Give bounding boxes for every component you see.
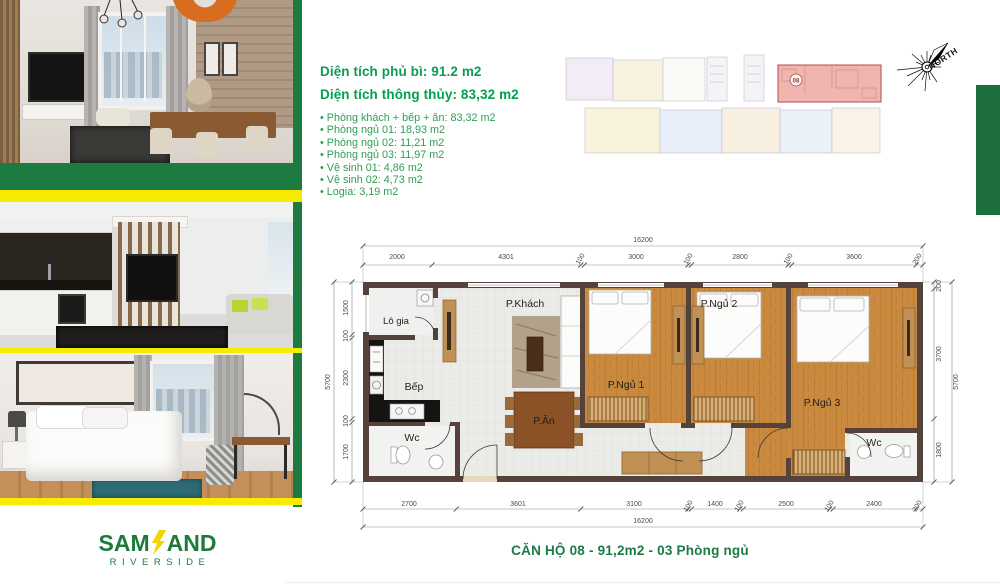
picture-frame xyxy=(16,361,138,405)
spec-item: Vệ sinh 02: 4,73 m2 xyxy=(320,174,570,186)
green-pillow xyxy=(232,300,248,312)
dim-bottom: 100 xyxy=(824,499,836,513)
wall-art xyxy=(204,42,220,76)
pouf xyxy=(96,108,130,126)
room-label-bed2: P.Ngủ 2 xyxy=(701,298,738,310)
dim-top: 3000 xyxy=(628,254,644,261)
window xyxy=(268,222,293,304)
dim-bottom: 3100 xyxy=(626,501,642,508)
chair xyxy=(150,128,172,154)
dark-rug xyxy=(56,326,228,348)
wall-art xyxy=(222,42,238,76)
room-label-wc2: Wc xyxy=(866,437,881,449)
dim-bottom: 3601 xyxy=(510,501,526,508)
photo-living-room xyxy=(0,0,293,163)
dim-bottom: 2700 xyxy=(401,501,417,508)
dim-left: 2300 xyxy=(343,370,350,386)
green-accent-block xyxy=(976,85,1000,215)
divider-band-green xyxy=(0,163,302,190)
compass-rose: NORTH xyxy=(890,30,975,110)
chair xyxy=(246,126,268,152)
floorplate-locator: 08 xyxy=(560,48,890,160)
unit-number-badge: 08 xyxy=(793,79,800,85)
logo-wordmark: SAMAND xyxy=(75,530,240,555)
divider-band-yellow xyxy=(0,498,302,505)
spec-item: Vệ sinh 01: 4,86 m2 xyxy=(320,162,570,174)
dim-top: 2800 xyxy=(732,254,748,261)
desk xyxy=(232,437,290,445)
dim-left: 100 xyxy=(343,415,350,427)
lamp-base xyxy=(15,427,18,441)
highlighted-unit-08: 08 xyxy=(778,65,881,102)
room-label-living: P.Khách xyxy=(506,298,544,310)
dim-right: 3700 xyxy=(936,346,943,362)
brand-logo: SAMAND RIVERSIDE xyxy=(75,530,240,568)
photo-bedroom xyxy=(0,353,293,498)
divider-band-yellow xyxy=(0,190,302,202)
spec-item: Phòng ngủ 01: 18,93 m2 xyxy=(320,124,570,136)
tv xyxy=(126,254,178,302)
oven xyxy=(58,294,86,324)
arc-lamp xyxy=(244,393,280,435)
chair xyxy=(196,132,218,158)
green-pillow xyxy=(252,298,268,310)
dim-bottom: 1400 xyxy=(707,501,723,508)
dim-top-total: 16200 xyxy=(633,237,653,244)
dim-bottom: 200 xyxy=(912,499,924,513)
countertop xyxy=(0,280,112,290)
dim-right: 1800 xyxy=(936,442,943,458)
floor-plan: P.Khách Lô gia Bếp Wc P.Ăn P.Ngủ 1 P.Ngủ… xyxy=(300,228,980,540)
dim-left: 100 xyxy=(343,330,350,342)
dim-bottom: 2500 xyxy=(778,501,794,508)
table-lamp xyxy=(8,411,26,427)
faucet xyxy=(48,264,51,280)
room-label-wc1: Wc xyxy=(404,432,419,444)
wood-slat-wall xyxy=(0,0,20,163)
brochure-page: Diện tích phủ bì: 91.2 m2 Diện tích thôn… xyxy=(0,0,1000,587)
upper-cabinets xyxy=(0,218,112,233)
dim-right-total: 5700 xyxy=(953,374,960,390)
room-label-bed1: P.Ngủ 1 xyxy=(608,379,645,391)
spec-item: Phòng khách + bếp + ăn: 83,32 m2 xyxy=(320,112,570,124)
dim-left: 1700 xyxy=(343,444,350,460)
dim-bottom: 100 xyxy=(683,499,695,513)
room-label-bed3: P.Ngủ 3 xyxy=(804,397,841,409)
desk-chair xyxy=(206,445,234,485)
dim-bottom: 100 xyxy=(734,499,746,513)
dim-top: 4301 xyxy=(498,254,514,261)
spec-item: Phòng ngủ 03: 11,97 m2 xyxy=(320,149,570,161)
apartment-caption: CĂN HỘ 08 - 91,2m2 - 03 Phòng ngủ xyxy=(330,543,930,558)
photo-kitchen xyxy=(0,202,293,348)
dim-top: 3600 xyxy=(846,254,862,261)
net-area-heading: Diện tích thông thủy: 83,32 m2 xyxy=(320,87,570,102)
room-label-kitchen: Bếp xyxy=(405,381,424,393)
logo-sam: SAM xyxy=(99,530,150,556)
desk-leg xyxy=(284,445,287,479)
dim-right: 200 xyxy=(936,280,943,292)
dim-left: 1500 xyxy=(343,300,350,316)
yellow-bolt-icon xyxy=(151,530,166,555)
flower-vase xyxy=(186,78,212,112)
dim-top: 2000 xyxy=(389,254,405,261)
city-skyline xyxy=(104,52,162,98)
spec-item: Logia: 3,19 m2 xyxy=(320,186,570,198)
logo-and: AND xyxy=(167,530,217,556)
pendant-light xyxy=(92,0,148,34)
dim-bottom: 2400 xyxy=(866,501,882,508)
dim-bottom-total: 16200 xyxy=(633,518,653,525)
gross-area-heading: Diện tích phủ bì: 91.2 m2 xyxy=(320,64,570,79)
photo-column xyxy=(0,0,302,507)
footer-divider xyxy=(285,582,1000,583)
entry-threshold xyxy=(463,476,497,482)
logo-subtitle: RIVERSIDE xyxy=(75,557,240,568)
teal-rug xyxy=(92,479,202,498)
dim-top: 200 xyxy=(912,252,924,266)
area-specs: Diện tích phủ bì: 91.2 m2 Diện tích thôn… xyxy=(320,64,570,199)
dim-left-total: 5700 xyxy=(325,374,332,390)
room-label-logia: Lô gia xyxy=(383,316,410,327)
desk-leg xyxy=(234,445,237,479)
pillow xyxy=(82,407,128,429)
room-label-dining: P.Ăn xyxy=(533,414,555,427)
spec-item: Phòng ngủ 02: 11,21 m2 xyxy=(320,137,570,149)
